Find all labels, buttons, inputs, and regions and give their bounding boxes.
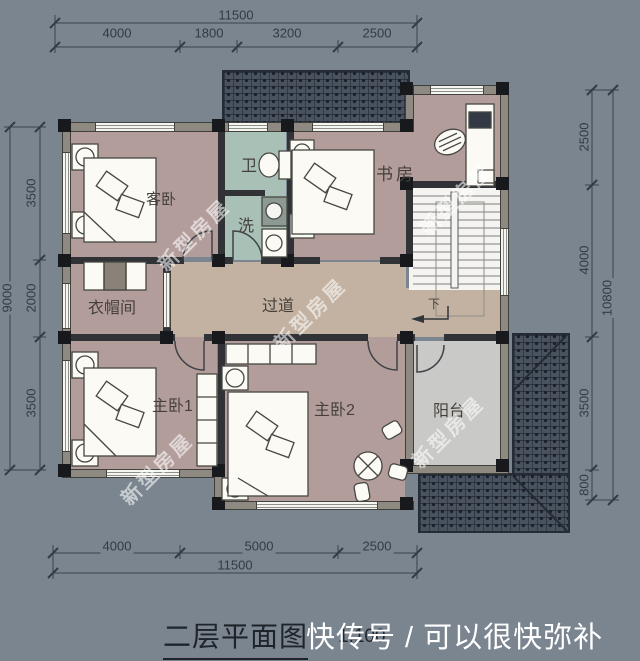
dim-right-total: 10800 (600, 278, 615, 318)
bed-master2 (222, 366, 308, 500)
footer-watermark: 快传号 / 可以很快弥补 (306, 614, 603, 656)
door-master2 (368, 341, 397, 370)
dim-right-3: 3500 (577, 387, 592, 420)
bed-study (290, 140, 374, 238)
roof-hip-lines (514, 336, 567, 531)
dim-left-1: 3500 (24, 177, 39, 210)
wardrobe-master1 (197, 374, 217, 466)
label-cloakroom: 衣帽间 (88, 294, 136, 318)
dim-bottom-1: 4000 (101, 539, 134, 554)
dim-right-4: 800 (577, 472, 592, 498)
plan-overlay (0, 0, 640, 661)
label-master2: 主卧2 (314, 396, 355, 420)
label-guest-bedroom: 客卧 (146, 188, 176, 209)
dim-top-total: 11500 (216, 8, 255, 23)
label-wash: 洗 (238, 212, 254, 236)
toilet (259, 151, 291, 179)
label-study: 书房 (376, 160, 416, 185)
bed-guest (72, 144, 156, 242)
plan-title: 二层平面图 (163, 615, 308, 660)
label-master1: 主卧1 (152, 392, 193, 416)
door-master1 (175, 341, 204, 370)
dim-left-2: 2000 (24, 282, 39, 315)
wash-basin (262, 197, 287, 226)
floor-plan-canvas: 客卧 卫 洗 书房 衣帽间 过道 主卧1 主卧2 阳台 下 11500 4000… (0, 0, 640, 661)
label-bath: 卫 (241, 152, 257, 176)
dim-left-total: 9000 (0, 282, 15, 315)
washing-machine (262, 229, 287, 257)
dim-top-4: 2500 (361, 26, 394, 41)
dim-top-1: 4000 (101, 26, 134, 41)
dim-bottom-total: 11500 (215, 558, 254, 573)
label-stairs-down: 下 (428, 295, 440, 312)
door-balcony (417, 345, 444, 372)
dim-right-1: 2500 (577, 121, 592, 154)
dim-bottom-3: 2500 (361, 539, 394, 554)
dim-right-2: 4000 (577, 244, 592, 277)
dim-top-3: 3200 (271, 26, 304, 41)
bed-master1 (72, 352, 156, 466)
dim-bottom-2: 5000 (243, 539, 276, 554)
cloakroom-cabinet (84, 262, 146, 290)
dim-left-3: 3500 (24, 387, 39, 420)
dim-top-2: 1800 (193, 26, 226, 41)
table-set-master2 (354, 419, 409, 502)
wardrobe-master2 (226, 344, 316, 364)
